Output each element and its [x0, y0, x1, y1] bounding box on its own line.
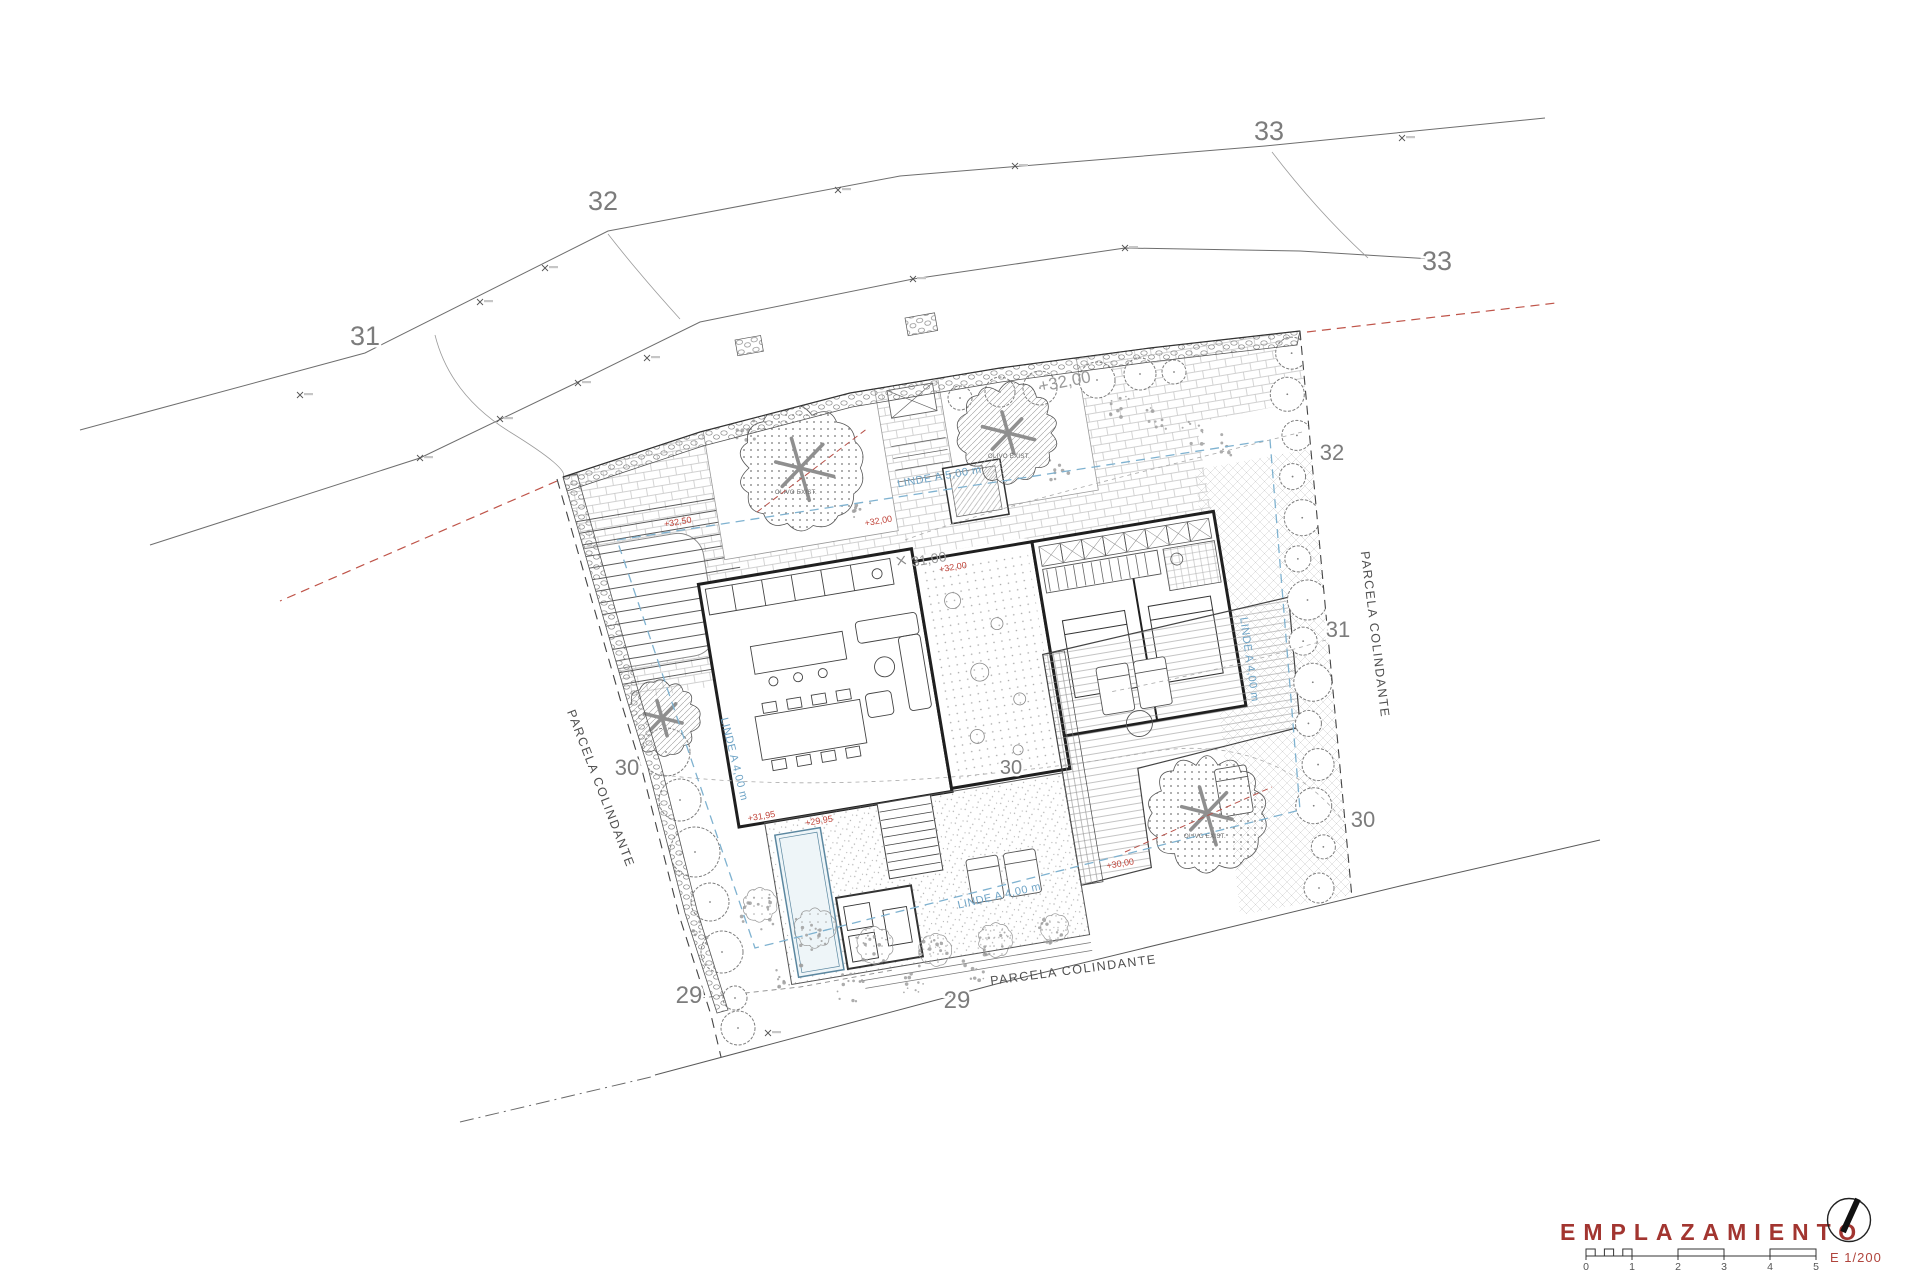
site-interior: +32,50 +32,00 +32,00 +31,95 +29,95 +30,0…: [397, 249, 1355, 1045]
contour-number: 32: [1320, 440, 1344, 465]
scale-number: 2: [1675, 1261, 1681, 1273]
drawing-title: EMPLAZAMIENTO: [1560, 1219, 1864, 1245]
shrub-circle: [1311, 835, 1335, 859]
shrub-circle: [1296, 788, 1332, 824]
gate-post: [905, 313, 938, 336]
survey-marker: [297, 392, 313, 398]
stipple-cluster: [584, 642, 611, 668]
parcel-label-left: PARCELA COLINDANTE: [564, 708, 637, 870]
bathroom: [1163, 541, 1221, 591]
survey-marker: [477, 299, 493, 305]
existing-tree: [1148, 756, 1266, 873]
shrub-circle: [1285, 546, 1311, 572]
title-block: EMPLAZAMIENTO 012345 E 1/200: [1560, 1199, 1882, 1274]
site-plan-canvas: +32,50 +32,00 +32,00 +31,95 +29,95 +30,0…: [0, 0, 1920, 1280]
stipple-cluster: [1220, 433, 1232, 456]
scale-number: 4: [1767, 1261, 1773, 1273]
contour-number: 31: [1326, 617, 1350, 642]
gate-post: [735, 335, 763, 355]
shrub: [978, 923, 1012, 958]
shrub-circle: [721, 1011, 755, 1045]
shrub-circle: [1304, 873, 1334, 903]
shrub-circle: [1288, 580, 1328, 620]
stipple-cluster: [630, 789, 656, 822]
shrub-circle: [1302, 749, 1334, 781]
contour-number: 30: [615, 755, 639, 780]
shrub-circle: [1289, 627, 1317, 655]
survey-marker: [1012, 163, 1028, 169]
contour-number: 30: [1000, 757, 1022, 779]
survey-marker: [765, 1030, 781, 1036]
tree-label: OLIVO EXIST.: [1184, 834, 1226, 840]
contour-number: 32: [588, 186, 618, 216]
shrub-circle: [1268, 298, 1296, 326]
shrub-circle: [1284, 500, 1320, 536]
contour-number: 33: [1422, 246, 1452, 276]
survey-marker: [1122, 245, 1138, 251]
survey-marker: [644, 355, 660, 361]
scale-bar: [1586, 1249, 1816, 1260]
stipple-cluster: [903, 972, 924, 993]
stipple-cluster: [962, 959, 985, 982]
survey-marker: [542, 265, 558, 271]
shrub-circle: [1270, 377, 1304, 411]
tree-label: OLIVO EXIST.: [988, 454, 1030, 460]
shrub-circle: [1295, 710, 1321, 736]
shrub-circle: [1282, 420, 1312, 450]
shrub: [857, 926, 893, 964]
shrub-circle: [1294, 663, 1332, 701]
scale-number: 0: [1583, 1261, 1589, 1273]
site-plan-page: +32,50 +32,00 +32,00 +31,95 +29,95 +30,0…: [0, 0, 1920, 1280]
shrub-circle: [1280, 464, 1306, 490]
contour-number: 33: [1254, 116, 1284, 146]
contour-number: 29: [676, 982, 703, 1009]
scale-number: 1: [1629, 1261, 1635, 1273]
scale-text: E 1/200: [1830, 1250, 1882, 1265]
scale-number: 3: [1721, 1261, 1727, 1273]
contour-number: 31: [350, 321, 380, 351]
survey-marker: [575, 380, 591, 386]
parcel-label-bottom: PARCELA COLINDANTE: [989, 952, 1157, 988]
parcel-label-right: PARCELA COLINDANTE: [1358, 550, 1392, 718]
contour-number: 30: [1351, 807, 1375, 832]
shrub-circle: [1162, 360, 1186, 384]
scale-number: 5: [1813, 1261, 1819, 1273]
scale-bar-numbers: 012345: [1583, 1261, 1819, 1273]
stipple-cluster: [837, 973, 865, 1003]
survey-marker: [910, 276, 926, 282]
shrub: [743, 887, 777, 922]
contour-number: 29: [944, 987, 971, 1014]
survey-marker: [1399, 135, 1415, 141]
